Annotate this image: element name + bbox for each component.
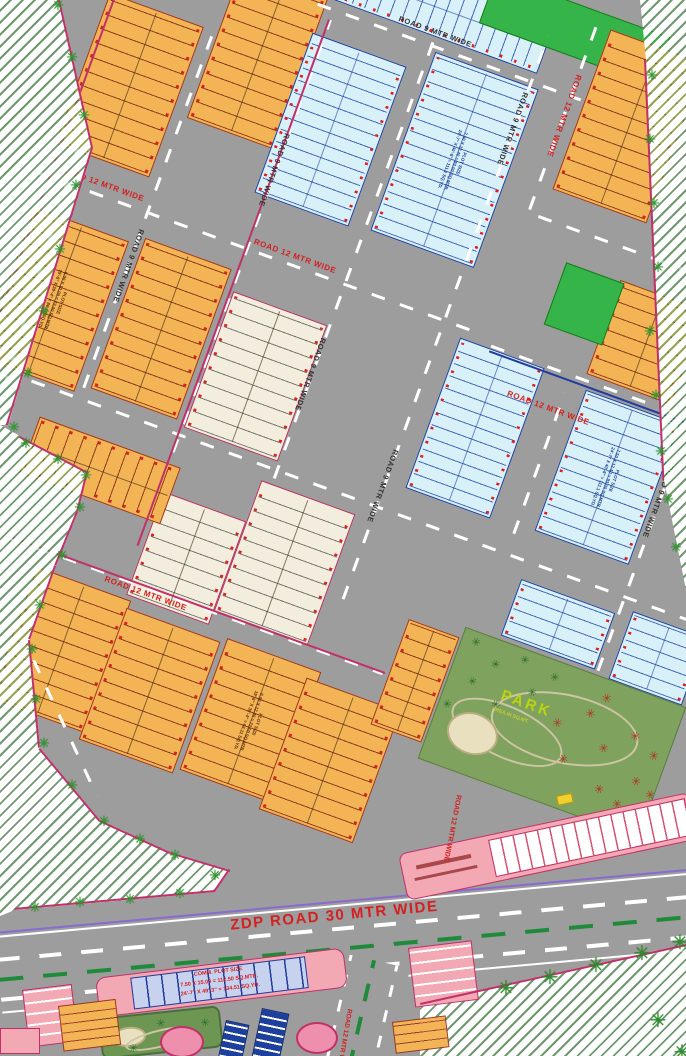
tree-icon: ✳	[52, 453, 64, 467]
tree-icon: ✳	[209, 869, 221, 883]
tree-icon: ✳	[655, 445, 667, 459]
park-bush-icon: ✳	[548, 671, 560, 684]
tree-icon: ✳	[644, 133, 656, 147]
tree-icon: ✳	[124, 893, 136, 907]
tree-icon: ✳	[26, 643, 38, 657]
tree-icon: ✳	[169, 849, 181, 863]
plot-cluster	[392, 1015, 449, 1053]
tree-icon: ✳	[66, 779, 78, 793]
palm-tree-icon: ✳	[672, 932, 686, 952]
park-tree-icon: ✳	[628, 729, 642, 744]
palm-tree-icon: ✳	[542, 967, 559, 987]
tree-icon: ✳	[34, 599, 46, 613]
tree-icon: ✳	[29, 901, 41, 915]
palm-tree-icon: ✳	[498, 978, 515, 998]
tree-icon: ✳	[662, 493, 674, 507]
commercial-plot	[0, 1028, 40, 1054]
garden-tree-icon: ✳	[156, 1018, 166, 1030]
park-bush-icon: ✳	[519, 653, 531, 666]
tree-icon: ✳	[646, 69, 658, 83]
tree-icon: ✳	[66, 51, 78, 65]
tree-icon: ✳	[78, 109, 90, 123]
tree-icon: ✳	[652, 261, 664, 275]
tree-icon: ✳	[174, 887, 186, 901]
plot-block-orange	[552, 29, 686, 223]
tree-icon: ✳	[8, 421, 20, 435]
tree-icon: ✳	[70, 179, 82, 193]
plot-cluster	[58, 999, 121, 1052]
tree-icon: ✳	[98, 815, 110, 829]
tree-icon: ✳	[52, 0, 64, 13]
park-tree-icon: ✳	[647, 749, 661, 764]
palm-tree-icon: ✳	[674, 1042, 686, 1056]
garden-feature	[296, 1022, 338, 1054]
palm-tree-icon: ✳	[650, 1010, 667, 1030]
tree-icon: ✳	[38, 737, 50, 751]
tree-icon: ✳	[74, 896, 86, 910]
tree-icon: ✳	[644, 325, 656, 339]
park-bush-icon: ✳	[466, 675, 478, 688]
park-tree-icon: ✳	[592, 782, 606, 797]
tree-icon: ✳	[80, 469, 92, 483]
garden-tree-icon: ✳	[128, 1043, 138, 1055]
tree-icon: ✳	[650, 389, 662, 403]
plot-division-lines	[556, 33, 686, 219]
park-tree-icon: ✳	[600, 691, 614, 706]
garden-feature	[160, 1026, 204, 1056]
park-tree-icon: ✳	[629, 774, 643, 789]
tree-icon: ✳	[74, 501, 86, 515]
median-dash-line	[347, 960, 376, 1056]
plot-block-orange	[19, 417, 180, 525]
park-bush-icon: ✳	[489, 658, 501, 671]
palm-tree-icon: ✳	[588, 955, 605, 975]
tree-icon: ✳	[38, 305, 50, 319]
palm-tree-icon: ✳	[634, 943, 651, 963]
site-layout-map: PLOT SIZE6.00 X 12.00 = 72.00 SQ.MTR.19'…	[0, 0, 686, 1056]
parking-strip	[249, 1008, 290, 1056]
tree-icon: ✳	[134, 833, 146, 847]
garden-tree-icon: ✳	[200, 1017, 210, 1029]
tree-icon: ✳	[670, 541, 682, 555]
tree-icon: ✳	[648, 197, 660, 211]
tree-icon: ✳	[30, 693, 42, 707]
park-bush-icon: ✳	[470, 636, 482, 649]
tree-icon: ✳	[22, 367, 34, 381]
tree-icon: ✳	[54, 243, 66, 257]
tree-icon: ✳	[56, 549, 68, 563]
tree-icon: ✳	[20, 437, 32, 451]
